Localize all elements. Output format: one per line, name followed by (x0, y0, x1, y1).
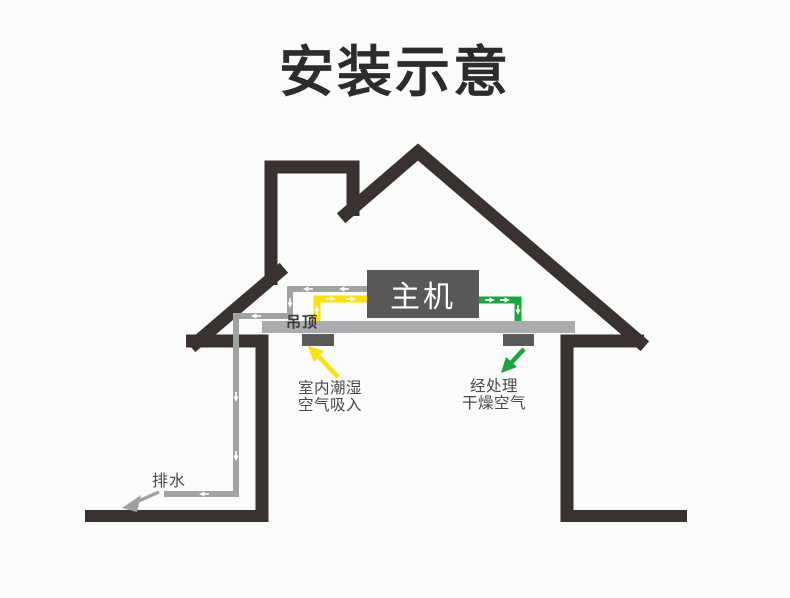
outlet-air-label-line1: 经处理 (461, 378, 527, 395)
intake-air-label-line2: 空气吸入 (298, 397, 362, 414)
outlet-vent (503, 334, 534, 346)
intake-pipe (317, 299, 369, 322)
outlet-air-label: 经处理 干燥空气 (461, 378, 527, 412)
outlet-air-label-line2: 干燥空气 (461, 395, 527, 412)
ceiling-label: 吊顶 (286, 311, 318, 332)
drain-arrow-icon (122, 492, 159, 512)
outlet-arrow-icon (501, 349, 524, 373)
installation-diagram: 安装示意 (0, 0, 790, 598)
main-unit-label: 主机 (367, 270, 479, 318)
intake-arrow-icon (308, 346, 338, 377)
outlet-pipe (477, 300, 518, 322)
intake-vent (302, 334, 334, 346)
drain-label: 排水 (152, 467, 186, 491)
intake-air-label: 室内潮湿 空气吸入 (298, 380, 362, 414)
right-eave-and-wall (567, 341, 644, 522)
intake-air-label-line1: 室内潮湿 (298, 380, 362, 397)
